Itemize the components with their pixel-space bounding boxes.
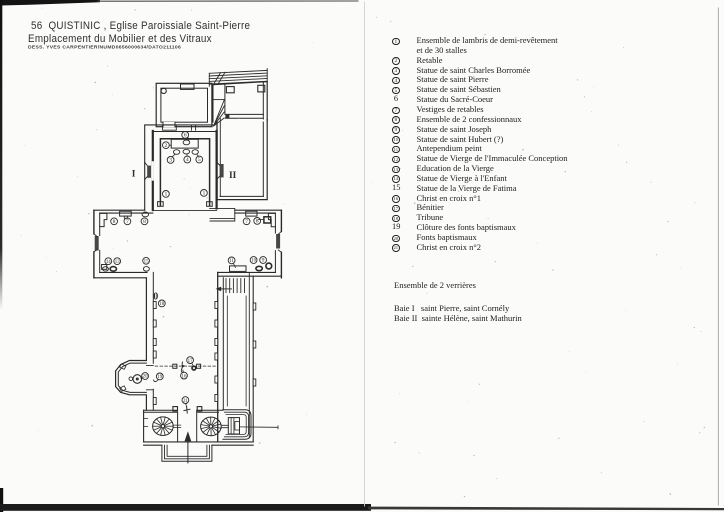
svg-text:1: 1 [202,191,205,197]
svg-text:8: 8 [143,219,146,225]
svg-text:4: 4 [186,157,189,163]
svg-text:8: 8 [113,219,116,225]
svg-text:7: 7 [126,219,129,225]
svg-text:2: 2 [164,143,167,149]
svg-text:15: 15 [144,260,149,265]
svg-text:6: 6 [184,133,187,139]
svg-text:17: 17 [188,359,193,364]
svg-text:21: 21 [183,399,188,404]
svg-text:13: 13 [115,260,120,265]
svg-text:0: 0 [153,291,158,302]
svg-text:II: II [229,171,237,181]
svg-text:20: 20 [143,375,148,380]
svg-text:7: 7 [245,219,248,225]
svg-text:16: 16 [182,374,187,379]
svg-text:1: 1 [164,192,167,198]
svg-text:I: I [132,169,136,179]
svg-text:5: 5 [198,157,201,163]
svg-text:18: 18 [159,302,164,307]
svg-text:3: 3 [169,158,172,164]
svg-text:9: 9 [262,258,265,264]
svg-text:10: 10 [251,259,256,264]
